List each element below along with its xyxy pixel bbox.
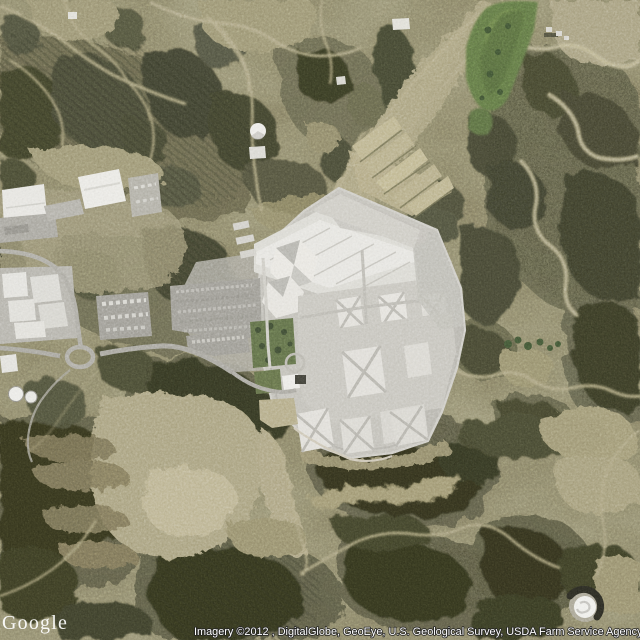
svg-text:Imagery ©2012 , DigitalGlobe,: Imagery ©2012 , DigitalGlobe, GeoEye, U.… xyxy=(194,626,640,638)
svg-text:Google: Google xyxy=(2,612,68,634)
